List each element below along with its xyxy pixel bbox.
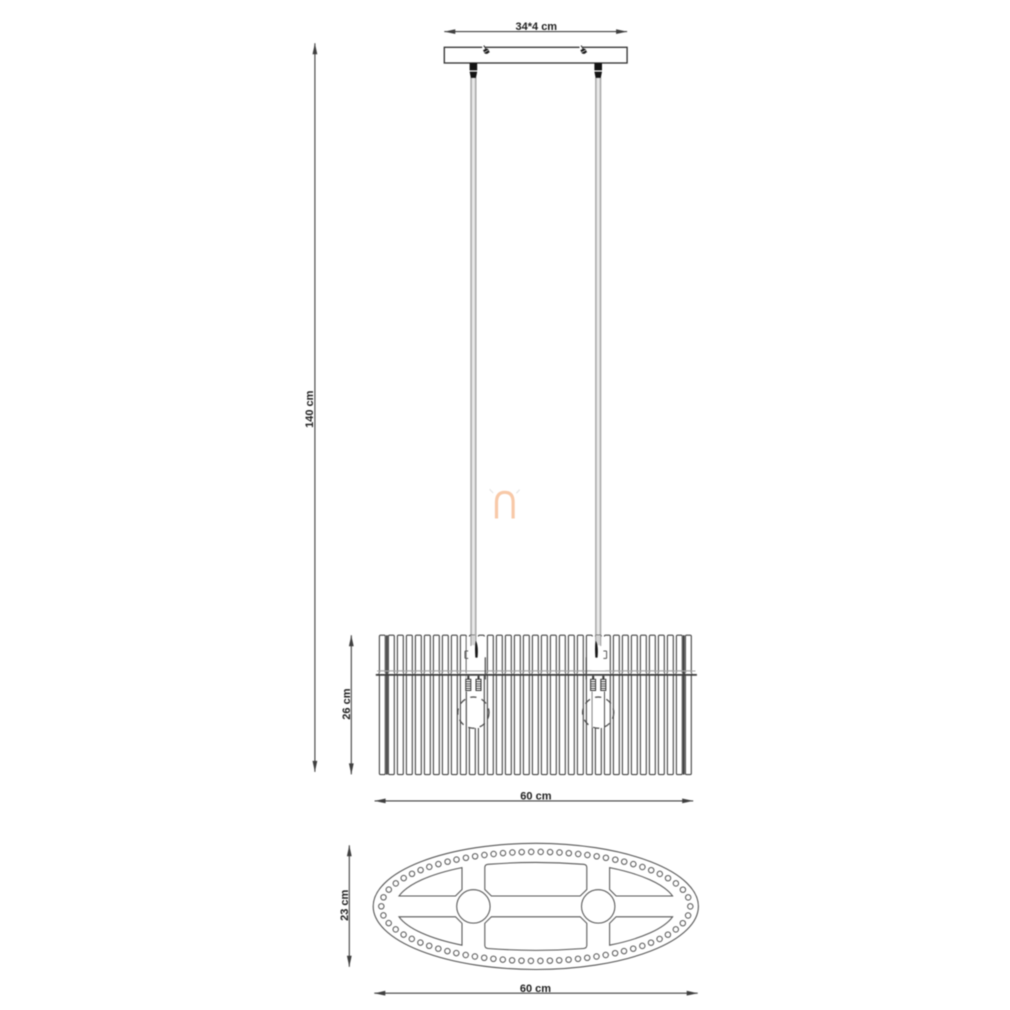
- svg-text:34*4 cm: 34*4 cm: [516, 21, 558, 33]
- svg-text:60 cm: 60 cm: [520, 983, 551, 995]
- svg-text:60 cm: 60 cm: [520, 790, 551, 802]
- svg-text:23 cm: 23 cm: [339, 889, 351, 920]
- svg-text:26 cm: 26 cm: [341, 688, 353, 719]
- svg-text:140 cm: 140 cm: [304, 390, 316, 428]
